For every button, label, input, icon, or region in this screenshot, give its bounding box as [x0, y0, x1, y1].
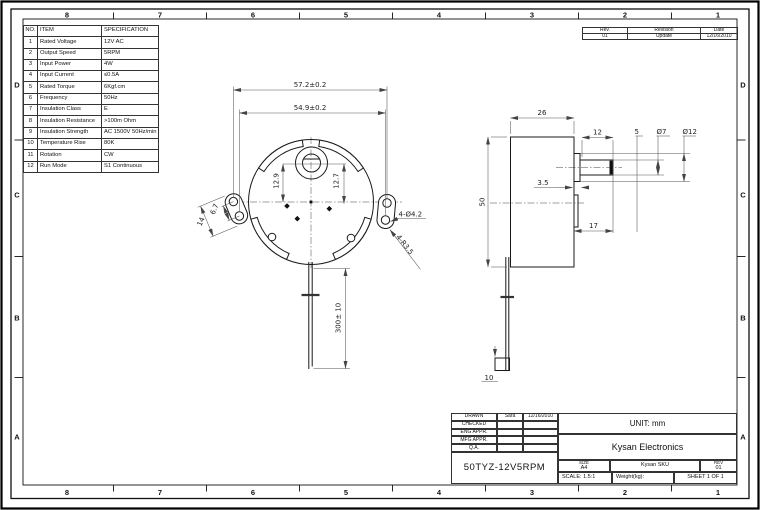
motor-front-view [225, 137, 402, 369]
spec-row: 2Output Speed5RPM [24, 48, 159, 59]
rim-notch [259, 140, 304, 171]
spec-item: Temperature Rise [38, 138, 102, 149]
approval-name: Sara [497, 413, 523, 421]
spec-row: 1Rated Voltage12V AC [24, 37, 159, 48]
notch-tab [268, 233, 276, 241]
spec-item: Input Current [38, 71, 102, 82]
spec-header-no: NO. [24, 26, 38, 37]
spec-value: 12V AC [102, 37, 159, 48]
center-mark [310, 201, 313, 204]
zone-col-label: 5 [344, 488, 348, 497]
spec-item: Insulation Resistance [38, 116, 102, 127]
part-number: 50TYZ-12V5RPM [451, 452, 558, 484]
zone-col-label: 6 [251, 488, 255, 497]
spec-no: 7 [24, 105, 38, 116]
dim-hole-span: 54.9±0.2 [294, 104, 327, 112]
zone-ticks-top [114, 13, 672, 20]
zone-ticks-right [737, 140, 746, 378]
spec-item: Rated Torque [38, 82, 102, 93]
side-view-dimensions: 26 50 12 5 Ø7 Ø12 3.5 [479, 109, 697, 382]
spec-value: ≤0.5A [102, 71, 159, 82]
zone-col-label: 7 [158, 11, 162, 20]
spec-header-spec: SPECIFICATION [102, 26, 159, 37]
spec-no: 10 [24, 138, 38, 149]
spec-value: 80K [102, 138, 159, 149]
weight-cell: Weight(kg): [612, 472, 674, 484]
spec-no: 4 [24, 71, 38, 82]
spec-header-row: NO. ITEM SPECIFICATION [24, 26, 159, 37]
spec-item: Rotation [38, 150, 102, 161]
revision-block: Rev. Revision Date 01 Update 12/16/2010 [582, 27, 738, 40]
dim-boss-length: 3.5 [537, 179, 548, 187]
size-value: A4 [581, 466, 588, 472]
dim-body-diameter: 50 [479, 198, 487, 207]
spec-value: >100m Ohm [102, 116, 159, 127]
rev-value: 01 [715, 466, 721, 472]
scale-cell: SCALE: 1.5:1 [558, 472, 612, 484]
approval-date [523, 421, 558, 429]
approval-label: CHECKED [451, 421, 497, 429]
ear-edge [574, 195, 578, 227]
spec-no: 2 [24, 48, 38, 59]
spec-value: CW [102, 150, 159, 161]
rivet-mark [295, 216, 301, 222]
rivet-mark [284, 203, 290, 209]
rev-cell: REV 01 [700, 460, 737, 472]
zone-col-label: 4 [437, 488, 442, 497]
spec-no: 12 [24, 161, 38, 172]
spec-item: Input Power [38, 59, 102, 70]
zone-row-label: C [740, 191, 746, 200]
revision-header-row: Rev. Revision Date [583, 28, 738, 34]
spec-no: 3 [24, 59, 38, 70]
dim-shaft-length: 12 [593, 129, 602, 137]
approval-name [497, 436, 523, 444]
zone-col-label: 3 [530, 488, 534, 497]
dim-overall-width: 57.2±0.2 [294, 81, 327, 89]
zone-col-label: 2 [623, 488, 627, 497]
unit-label: UNIT: mm [558, 413, 737, 434]
dim-lead-length: 300± 10 [335, 303, 343, 333]
spec-no: 11 [24, 150, 38, 161]
dim-connector-height: 10 [485, 374, 494, 382]
revision-entry-row: 01 Update 12/16/2010 [583, 34, 738, 40]
revision-value: Update [628, 34, 701, 40]
company-name: Kysan Electronics [558, 434, 737, 460]
spec-no: 9 [24, 127, 38, 138]
rev-value: 01 [583, 34, 628, 40]
size-cell: SIZE A4 [558, 460, 610, 472]
zone-col-label: 8 [65, 11, 69, 20]
zone-row-label: A [740, 433, 746, 442]
approval-name [497, 421, 523, 429]
dim-offset-left: 12.9 [273, 173, 281, 189]
zone-col-label: 1 [716, 488, 720, 497]
shaft-end [610, 161, 614, 175]
approval-name [497, 444, 523, 452]
zone-row-label: B [14, 314, 20, 323]
dim-shaft-total: 17 [589, 222, 598, 230]
spec-row: 4Input Current≤0.5A [24, 71, 159, 82]
sku-cell: Kysan SKU [610, 460, 700, 472]
zone-col-label: 2 [623, 11, 627, 20]
callout-ear-radius: 4-R3.5 [394, 233, 414, 256]
approval-date: 12/16/2010 [523, 413, 558, 421]
spec-item: Insulation Class [38, 105, 102, 116]
spec-row: 11RotationCW [24, 150, 159, 161]
spec-row: 6Frequency50Hz [24, 93, 159, 104]
spec-value: 50Hz [102, 93, 159, 104]
approval-label: Q.A. [451, 444, 497, 452]
extension-line [210, 226, 237, 237]
zone-col-label: 1 [716, 11, 720, 20]
zone-col-label: 3 [530, 11, 534, 20]
zone-row-label: D [740, 81, 746, 90]
zone-ticks-left [15, 140, 24, 378]
approval-date [523, 444, 558, 452]
zone-col-label: 4 [437, 11, 442, 20]
spec-row: 3Input Power4W [24, 59, 159, 70]
spec-row: 12Run ModeS1 Continuous [24, 161, 159, 172]
dim-boss-dia: Ø12 [683, 128, 697, 136]
dim-offset-right: 12.7 [333, 173, 341, 189]
dim-shaft-tip: 5 [635, 128, 639, 136]
approval-date [523, 436, 558, 444]
motor-side-view [490, 137, 622, 371]
spec-no: 1 [24, 37, 38, 48]
zone-ticks-bottom [114, 485, 672, 492]
date-value: 12/16/2010 [701, 34, 738, 40]
zone-row-label: A [14, 433, 20, 442]
dim-ear-hole-pitch: 6.7 [209, 203, 221, 216]
spec-item: Rated Voltage [38, 37, 102, 48]
spec-item: Run Mode [38, 161, 102, 172]
spec-item: Frequency [38, 93, 102, 104]
zone-row-label: D [14, 81, 20, 90]
spec-no: 5 [24, 82, 38, 93]
notch-tab [347, 234, 355, 242]
zone-col-label: 7 [158, 488, 162, 497]
zone-col-label: 5 [344, 11, 348, 20]
spec-no: 6 [24, 93, 38, 104]
engineering-drawing-sheet: 8 7 6 5 4 3 2 1 8 7 6 5 4 3 2 1 D C B A … [0, 0, 760, 510]
approval-name [497, 429, 523, 437]
right-mounting-ear [377, 194, 396, 228]
spec-value: 6Kgf.cm [102, 82, 159, 93]
callout-mount-holes: 4-Ø4.2 [399, 211, 423, 219]
zone-col-label: 6 [251, 11, 255, 20]
spec-row: 5Rated Torque6Kgf.cm [24, 82, 159, 93]
dim-shaft-dia: Ø7 [657, 128, 667, 136]
spec-value: E [102, 105, 159, 116]
zone-row-label: C [14, 191, 20, 200]
shaft-boss-circle [296, 147, 328, 179]
zone-col-label: 8 [65, 488, 69, 497]
spec-value: 5RPM [102, 48, 159, 59]
rivet-mark [327, 206, 333, 212]
spec-item: Insulation Strength [38, 127, 102, 138]
shaft-circle [303, 154, 321, 172]
spec-value: AC 1500V 50Hz/min [102, 127, 159, 138]
approval-label: DRAWN [451, 413, 497, 421]
motor-body-side [511, 137, 575, 267]
spec-row: 9Insulation StrengthAC 1500V 50Hz/min [24, 127, 159, 138]
specification-table: NO. ITEM SPECIFICATION 1Rated Voltage12V… [23, 25, 159, 173]
spec-row: 8Insulation Resistance>100m Ohm [24, 116, 159, 127]
approval-label: MFG APPR. [451, 436, 497, 444]
zone-row-label: B [740, 314, 746, 323]
spec-row: 7Insulation ClassE [24, 105, 159, 116]
spec-value: 4W [102, 59, 159, 70]
title-block: DRAWN Sara 12/16/2010 CHECKED ENG APPR. … [451, 413, 737, 484]
spec-value: S1 Continuous [102, 161, 159, 172]
spec-no: 8 [24, 116, 38, 127]
spec-header-item: ITEM [38, 26, 102, 37]
approval-date [523, 429, 558, 437]
wire-terminal [495, 358, 510, 371]
spec-row: 10Temperature Rise80K [24, 138, 159, 149]
approval-label: ENG APPR. [451, 429, 497, 437]
spec-item: Output Speed [38, 48, 102, 59]
dim-body-depth: 26 [538, 109, 547, 117]
sheet-cell: SHEET 1 OF 1 [674, 472, 737, 484]
